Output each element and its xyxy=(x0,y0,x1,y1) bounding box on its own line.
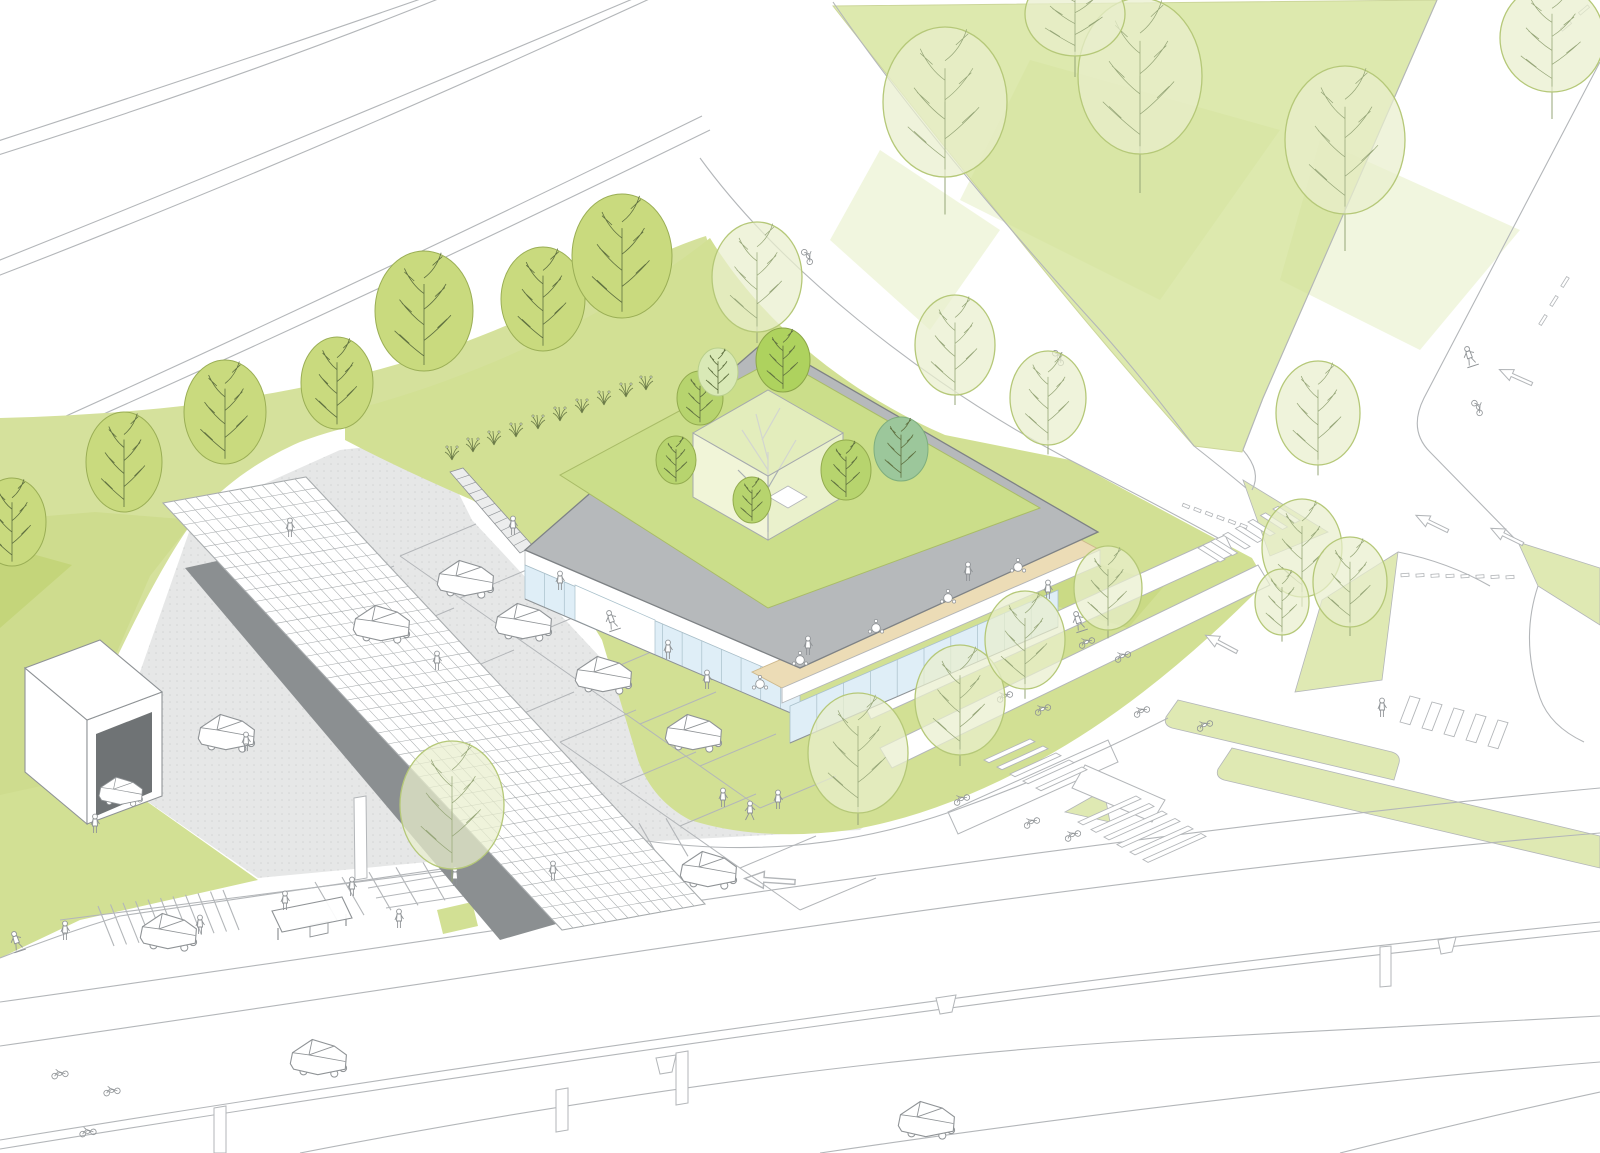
viaduct-pier xyxy=(556,1088,568,1132)
viaduct-pier xyxy=(214,1106,226,1153)
lane-dash xyxy=(1431,574,1439,578)
lane-dash xyxy=(1461,574,1469,578)
site-plan-canvas xyxy=(0,0,1600,1153)
viaduct-pier xyxy=(676,1051,688,1105)
architectural-site-plan xyxy=(0,0,1600,1153)
lane-dash xyxy=(1416,574,1424,578)
lane-dash xyxy=(1491,575,1499,579)
canopy-post xyxy=(354,796,367,880)
viaduct-pier xyxy=(1380,946,1391,987)
lane-dash xyxy=(1446,574,1454,578)
lane-dash xyxy=(1476,575,1484,579)
lane-dash xyxy=(1401,573,1409,577)
lane-dash xyxy=(1506,575,1514,579)
